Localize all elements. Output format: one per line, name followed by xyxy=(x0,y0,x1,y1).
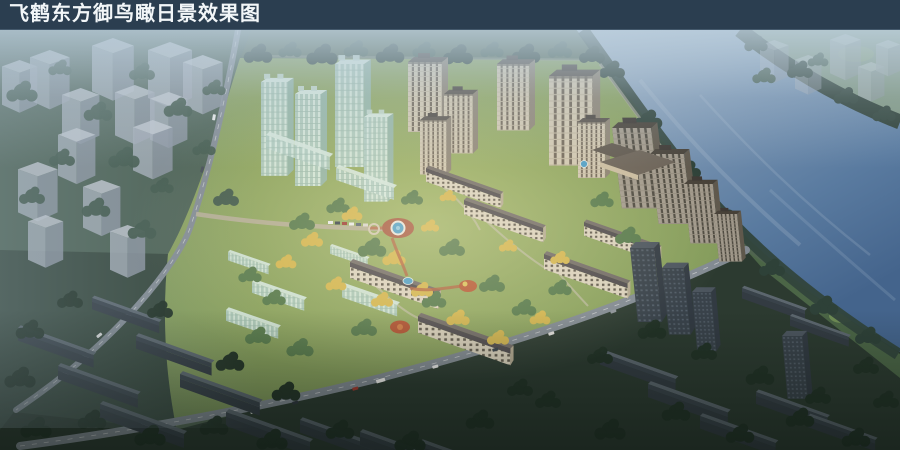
title-bar: 飞鹤东方御鸟瞰日景效果图 xyxy=(0,0,900,30)
rendering-viewport: 飞鹤东方御鸟瞰日景效果图 xyxy=(0,0,900,450)
bottom-vignette xyxy=(0,310,900,450)
aerial-rendering xyxy=(0,0,900,450)
page-title: 飞鹤东方御鸟瞰日景效果图 xyxy=(0,0,900,29)
